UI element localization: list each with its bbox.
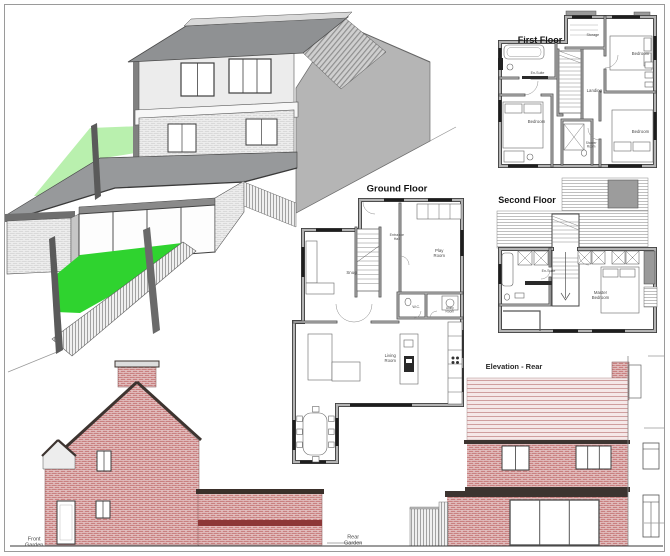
ground-floor-plan xyxy=(293,199,464,464)
staircase xyxy=(559,51,581,113)
glazed-doors xyxy=(510,500,599,545)
second-floor-plan xyxy=(497,178,657,332)
garden-wall xyxy=(198,492,322,545)
drawing-sheet: First Floor Ground Floor Second Floor El… xyxy=(0,0,670,556)
extension-wing-face xyxy=(7,218,71,274)
neighbor-window xyxy=(643,443,659,469)
rooflight xyxy=(608,180,638,208)
fence-right xyxy=(244,182,296,227)
staircase xyxy=(357,229,379,291)
rear-elevation xyxy=(439,356,665,546)
eaves-fascia xyxy=(464,440,630,444)
site-boundary-line xyxy=(8,352,57,372)
extension-roof-band xyxy=(445,491,628,497)
staircase xyxy=(552,214,579,306)
upper-window xyxy=(229,59,271,93)
garden-wall-band xyxy=(198,520,322,526)
chimney-cap xyxy=(115,361,159,367)
architect-drawing-svg xyxy=(0,0,670,556)
garden-wall-coping xyxy=(196,489,324,494)
first-floor-plan xyxy=(498,11,656,167)
front-elevation xyxy=(42,361,324,545)
rear-garden-strip xyxy=(327,507,447,546)
front-door xyxy=(57,501,75,544)
fence xyxy=(439,502,448,546)
window xyxy=(576,446,611,469)
roof-tiles xyxy=(467,378,628,440)
